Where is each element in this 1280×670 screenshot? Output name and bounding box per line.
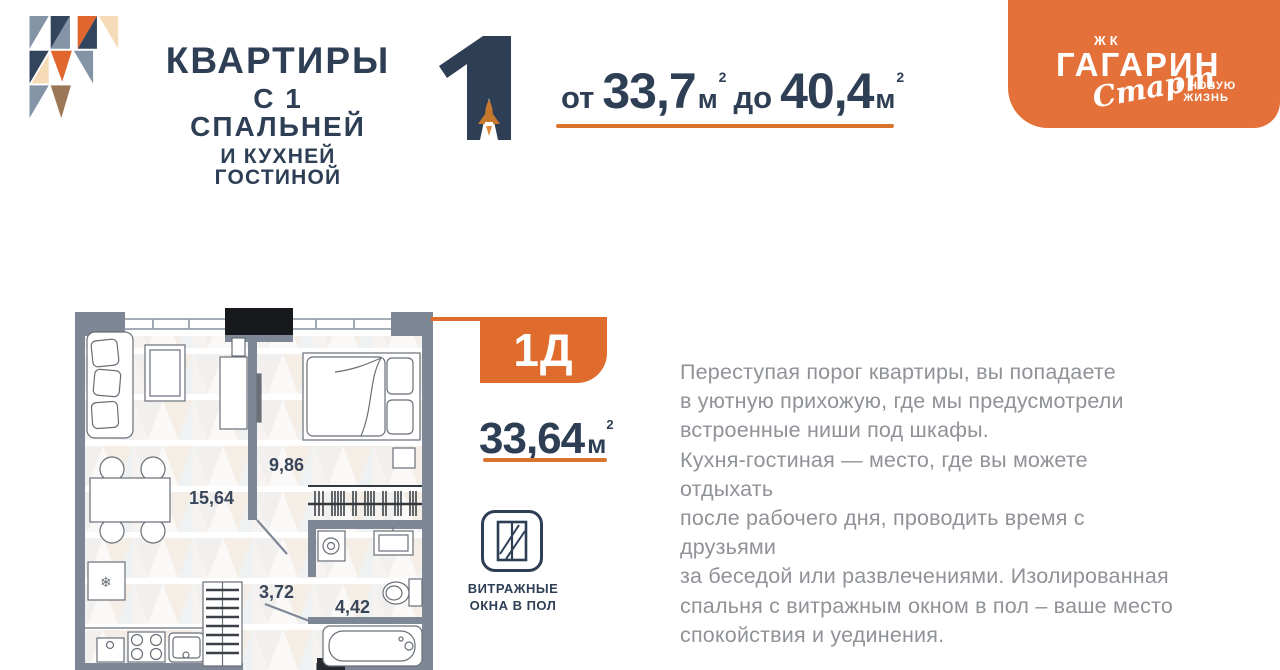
- bed: [303, 353, 420, 440]
- room-label-kitchen-living: 15,64: [189, 488, 234, 508]
- room-label-bathroom: 4,42: [335, 597, 370, 617]
- range-mid: до: [733, 80, 772, 116]
- title-line-3: И КУХНЕЙ ГОСТИНОЙ: [163, 146, 393, 188]
- flat-brochure-page: КВАРТИРЫ С 1 СПАЛЬНЕЙ И КУХНЕЙ ГОСТИНОЙ …: [0, 0, 1280, 670]
- bathtub: [323, 626, 422, 666]
- range-underline: [556, 124, 894, 128]
- panoramic-window-icon: [481, 510, 543, 572]
- bathroom-sink: [374, 527, 413, 555]
- unit-area-value: 33,64: [479, 414, 584, 464]
- feature-label: ВИТРАЖНЫЕ ОКНА В ПОЛ: [448, 580, 578, 614]
- range-max: 40,4: [780, 62, 873, 120]
- unit-badge: 1Д: [480, 317, 607, 383]
- bedroom-count-numeral: [437, 36, 513, 140]
- range-min: 33,7: [602, 62, 695, 120]
- svg-text:❄: ❄: [100, 574, 112, 590]
- vent-shaft: [225, 308, 293, 335]
- room-label-bedroom: 9,86: [269, 455, 304, 475]
- brand-card: ЖК ГАГАРИН Старт В НОВУЮ ЖИЗНЬ: [1008, 0, 1280, 128]
- range-unit: м2: [698, 84, 726, 115]
- badge-connector-line: [431, 317, 481, 321]
- unit-label: 1Д: [513, 323, 573, 377]
- unit-area: 33,64 м2: [479, 414, 614, 464]
- coffee-table: [145, 345, 185, 401]
- room-label-hall: 3,72: [259, 582, 294, 602]
- brand-tagline: В НОВУЮ ЖИЗНЬ: [1176, 80, 1236, 104]
- unit-area-unit: м2: [587, 429, 613, 460]
- title-line-2: С 1 СПАЛЬНЕЙ: [163, 85, 393, 141]
- title-line-1: КВАРТИРЫ: [163, 42, 393, 79]
- area-range: от 33,7 м2 до 40,4 м2: [553, 62, 903, 120]
- area-underline: [483, 458, 607, 462]
- page-title: КВАРТИРЫ С 1 СПАЛЬНЕЙ И КУХНЕЙ ГОСТИНОЙ: [163, 42, 393, 188]
- fridge: ❄: [88, 562, 125, 600]
- range-unit: м2: [875, 84, 903, 115]
- sofa: [87, 332, 133, 438]
- floor-plan: ❄: [73, 308, 433, 670]
- range-prefix: от: [561, 80, 594, 116]
- description-text: Переступая порог квартиры, вы попадаете …: [680, 358, 1180, 650]
- developer-logo-icon: [16, 14, 122, 126]
- hall-wardrobe: [203, 582, 242, 666]
- washing-machine: [318, 531, 345, 561]
- bedside-table: [393, 448, 415, 468]
